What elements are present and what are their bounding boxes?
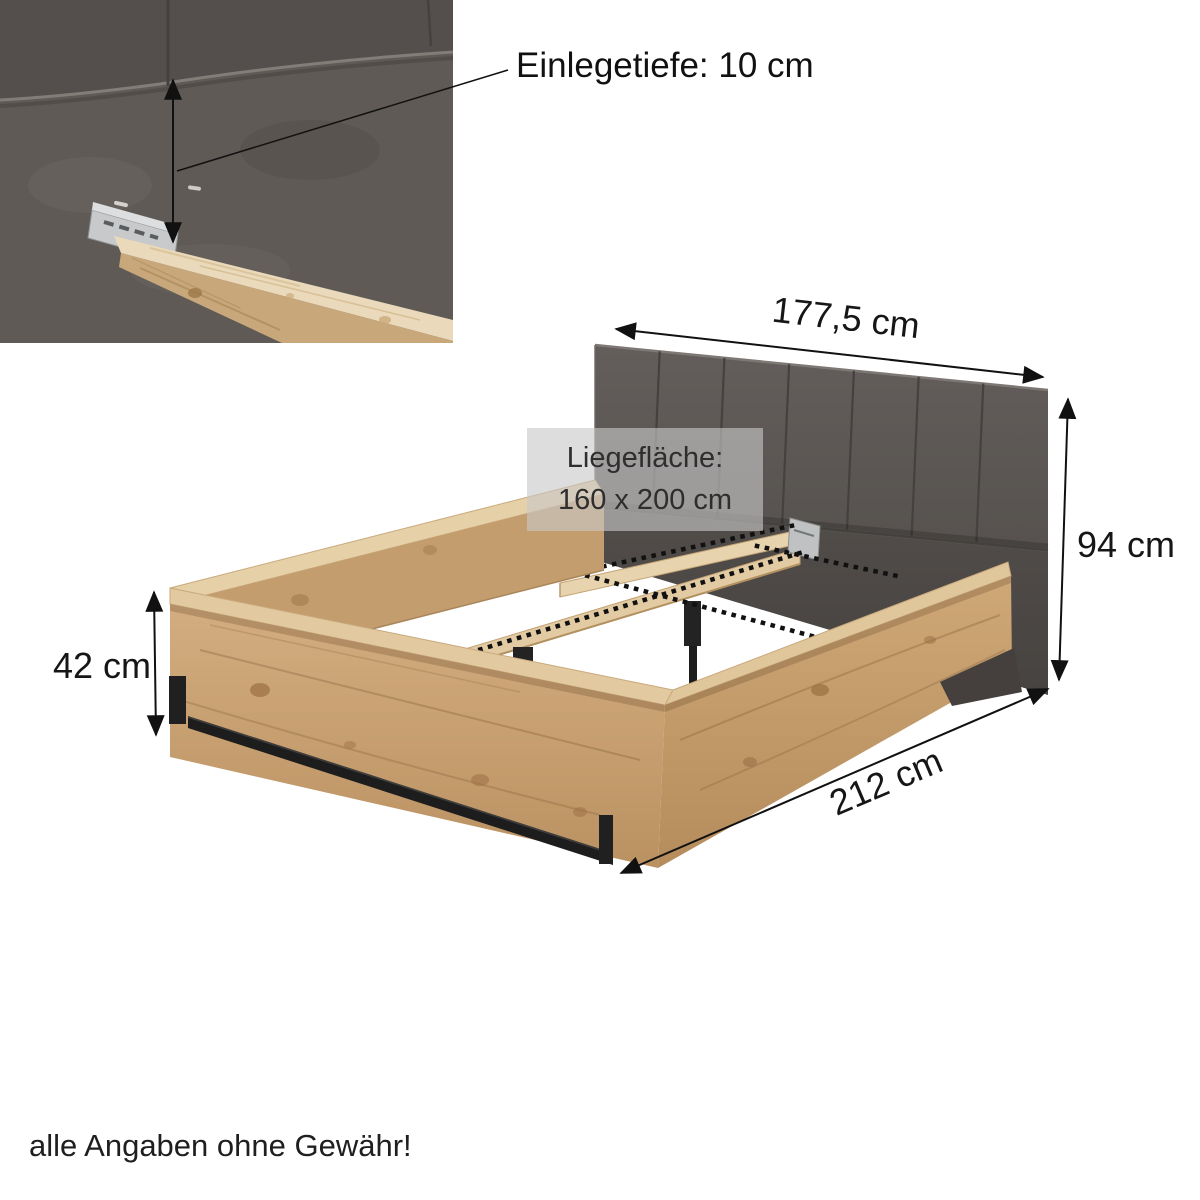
disclaimer-text: alle Angaben ohne Gewähr!	[29, 1128, 412, 1164]
foot-end-panel	[170, 588, 673, 868]
frame-height-arrow	[154, 592, 156, 735]
inset-photo	[0, 0, 453, 343]
lying-surface-size: 160 x 200 cm	[558, 484, 732, 517]
product-dimension-diagram: Einlegetiefe: 10 cm 177,5 cm 94 cm 42 cm…	[0, 0, 1200, 1200]
frame-height-label: 42 cm	[53, 646, 151, 686]
inset-fabric-mottle	[240, 120, 380, 180]
height-arrow	[1059, 399, 1068, 680]
inset-fabric-mottle	[28, 157, 152, 213]
lying-surface-box: Liegefläche: 160 x 200 cm	[527, 428, 763, 531]
lying-surface-title: Liegefläche:	[567, 442, 723, 475]
insert-depth-label: Einlegetiefe: 10 cm	[516, 46, 814, 86]
headboard-height-label: 94 cm	[1077, 525, 1175, 565]
bed-illustration	[0, 0, 1200, 1200]
